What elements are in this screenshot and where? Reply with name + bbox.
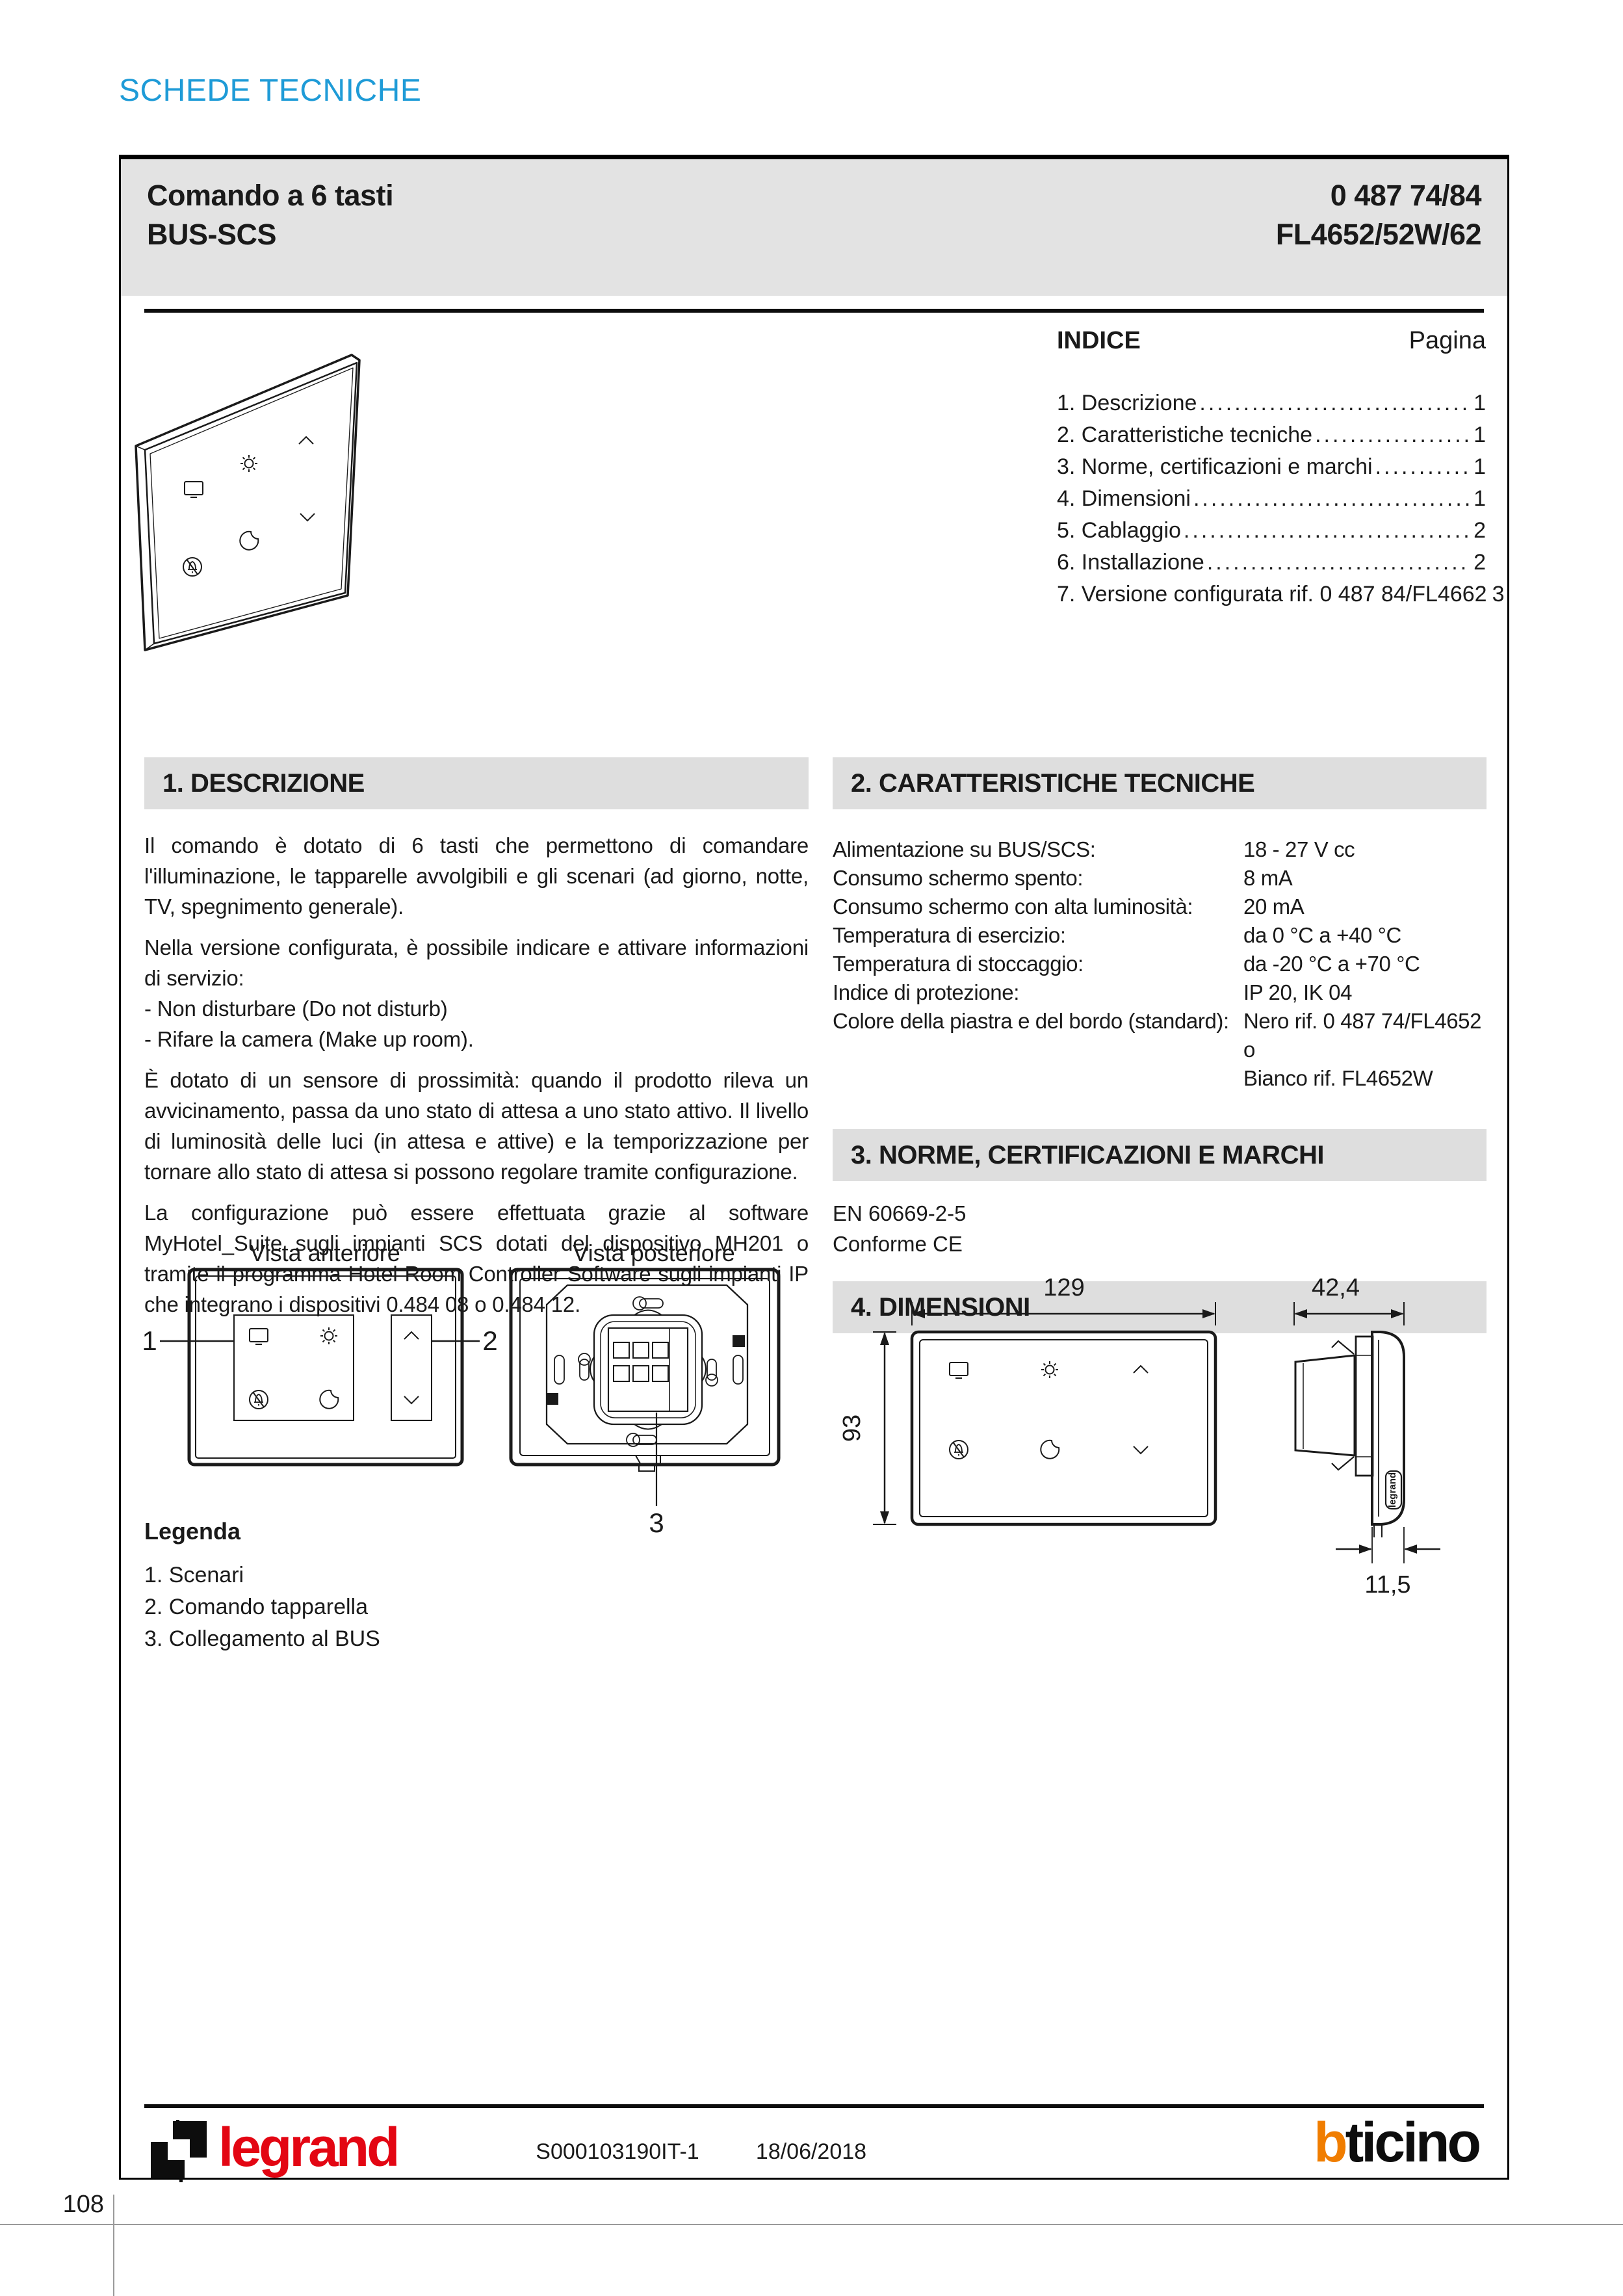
callout-3-bus: 3 <box>649 1507 664 1537</box>
legrand-mark-icon <box>149 2120 209 2182</box>
legrand-wordmark: legrand <box>218 2120 397 2174</box>
document-date: 18/06/2018 <box>727 2139 896 2165</box>
description-paragraph: Il comando è dotato di 6 tasti che perme… <box>144 830 809 922</box>
datasheet-page: SCHEDE TECNICHE Comando a 6 tasti BUS-SC… <box>0 0 1623 2296</box>
do-not-disturb-icon <box>250 1390 268 1409</box>
config-connector <box>546 1393 558 1405</box>
table-of-contents: INDICE Pagina 1. Descrizione............… <box>1057 327 1486 610</box>
shutter-up-icon <box>1134 1366 1148 1373</box>
page-number: 108 <box>39 2191 104 2219</box>
dim-width-value: 129 <box>1043 1274 1084 1301</box>
product-bus-type: BUS-SCS <box>147 215 393 254</box>
shutter-down-icon <box>404 1396 419 1403</box>
toc-item: 4. Dimensioni...........................… <box>1057 483 1486 515</box>
description-list-item: - Rifare la camera (Make up room). <box>144 1024 809 1054</box>
spec-row: Consumo schermo spento:8 mA <box>833 864 1487 893</box>
tv-scenario-icon <box>950 1363 968 1378</box>
spec-row: Temperatura di esercizio:da 0 °C a +40 °… <box>833 921 1487 950</box>
toc-item: 7. Versione configurata rif. 0 487 84/FL… <box>1057 579 1486 610</box>
dim-depth-value: 42,4 <box>1312 1274 1360 1301</box>
standards-heading: 3. NORME, CERTIFICAZIONI E MARCHI <box>833 1129 1487 1181</box>
description-paragraph: Nella versione configurata, è possibile … <box>144 932 809 993</box>
bticino-rest: ticino <box>1345 2111 1479 2174</box>
shutter-down-icon <box>1134 1446 1148 1454</box>
night-scenario-icon <box>240 532 258 550</box>
technical-section: 2. CARATTERISTICHE TECNICHE Alimentazion… <box>833 757 1487 1333</box>
description-section: 1. DESCRIZIONE Il comando è dotato di 6 … <box>144 757 809 1320</box>
day-scenario-icon <box>1041 1361 1058 1378</box>
bticino-logo: bticino <box>1314 2115 1479 2171</box>
toc-item: 1. Descrizione..........................… <box>1057 387 1486 419</box>
spec-row: Alimentazione su BUS/SCS:18 - 27 V cc <box>833 835 1487 864</box>
datasheet-frame: Comando a 6 tasti BUS-SCS 0 487 74/84 FL… <box>119 155 1509 2180</box>
toc-item: 5. Cablaggio............................… <box>1057 515 1486 547</box>
front-view-diagram: 1 2 <box>139 1264 503 1479</box>
dimensions-diagram: 129 93 42,4 <box>834 1264 1490 1615</box>
dim-plate-value: 11,5 <box>1364 1571 1410 1598</box>
spec-table: Alimentazione su BUS/SCS:18 - 27 V cc Co… <box>833 835 1487 1093</box>
callout-1-scenari: 1 <box>142 1325 157 1356</box>
description-list-item: - Non disturbare (Do not disturb) <box>144 993 809 1024</box>
night-scenario-icon <box>320 1390 338 1409</box>
rear-view-diagram: 3 <box>506 1264 792 1537</box>
footer-divider <box>144 2104 1484 2108</box>
header-divider <box>144 309 1484 313</box>
product-header: Comando a 6 tasti BUS-SCS 0 487 74/84 FL… <box>121 159 1507 296</box>
legend-item: 1. Scenari <box>144 1559 380 1591</box>
legend: Legenda 1. Scenari 2. Comando tapparella… <box>144 1518 380 1655</box>
legend-title: Legenda <box>144 1518 380 1545</box>
do-not-disturb-icon <box>950 1441 968 1459</box>
legrand-logo: legrand <box>149 2120 397 2182</box>
config-connector <box>733 1335 745 1347</box>
product-code-2: FL4652/52W/62 <box>1276 215 1481 254</box>
shutter-down-icon <box>300 514 315 521</box>
product-code-1: 0 487 74/84 <box>1276 176 1481 215</box>
shutter-up-icon <box>299 437 313 444</box>
dim-height-value: 93 <box>838 1415 866 1442</box>
legend-item: 2. Comando tapparella <box>144 1591 380 1623</box>
page-title: SCHEDE TECNICHE <box>119 73 421 109</box>
callout-2-tapparella: 2 <box>482 1325 497 1356</box>
legend-item: 3. Collegamento al BUS <box>144 1623 380 1655</box>
tv-scenario-icon <box>250 1329 268 1344</box>
day-scenario-icon <box>240 455 257 472</box>
tv-scenario-icon <box>185 482 203 497</box>
toc-page-label: Pagina <box>1409 327 1486 355</box>
shutter-up-icon <box>404 1332 419 1339</box>
do-not-disturb-icon <box>183 558 201 576</box>
night-scenario-icon <box>1041 1441 1059 1459</box>
product-3d-view <box>132 332 470 696</box>
page-footer-rule-vertical <box>113 2195 114 2296</box>
toc-item: 3. Norme, certificazioni e marchi.......… <box>1057 451 1486 483</box>
page-footer-rule <box>0 2224 1623 2225</box>
spec-row: Indice di protezione:IP 20, IK 04 <box>833 978 1487 1007</box>
day-scenario-icon <box>320 1327 337 1344</box>
toc-item: 2. Caratteristiche tecniche.............… <box>1057 419 1486 451</box>
standards-text: EN 60669-2-5 Conforme CE <box>833 1198 1487 1259</box>
spec-row: Consumo schermo con alta luminosità:20 m… <box>833 893 1487 921</box>
spec-row: Temperatura di stoccaggio:da -20 °C a +7… <box>833 950 1487 978</box>
side-logo-text: legrand <box>1387 1472 1398 1507</box>
toc-title: INDICE <box>1057 327 1141 355</box>
product-title: Comando a 6 tasti <box>147 176 393 215</box>
toc-item: 6. Installazione........................… <box>1057 547 1486 579</box>
document-reference: S000103190IT-1 <box>520 2139 715 2165</box>
front-view-label: Vista anteriore <box>188 1240 461 1267</box>
rear-view-label: Vista posteriore <box>517 1240 790 1267</box>
bticino-b: b <box>1314 2111 1345 2174</box>
description-heading: 1. DESCRIZIONE <box>144 757 809 809</box>
spec-row: Colore della piastra e del bordo (standa… <box>833 1007 1487 1093</box>
description-paragraph: È dotato di un sensore di prossimità: qu… <box>144 1065 809 1187</box>
technical-heading: 2. CARATTERISTICHE TECNICHE <box>833 757 1487 809</box>
